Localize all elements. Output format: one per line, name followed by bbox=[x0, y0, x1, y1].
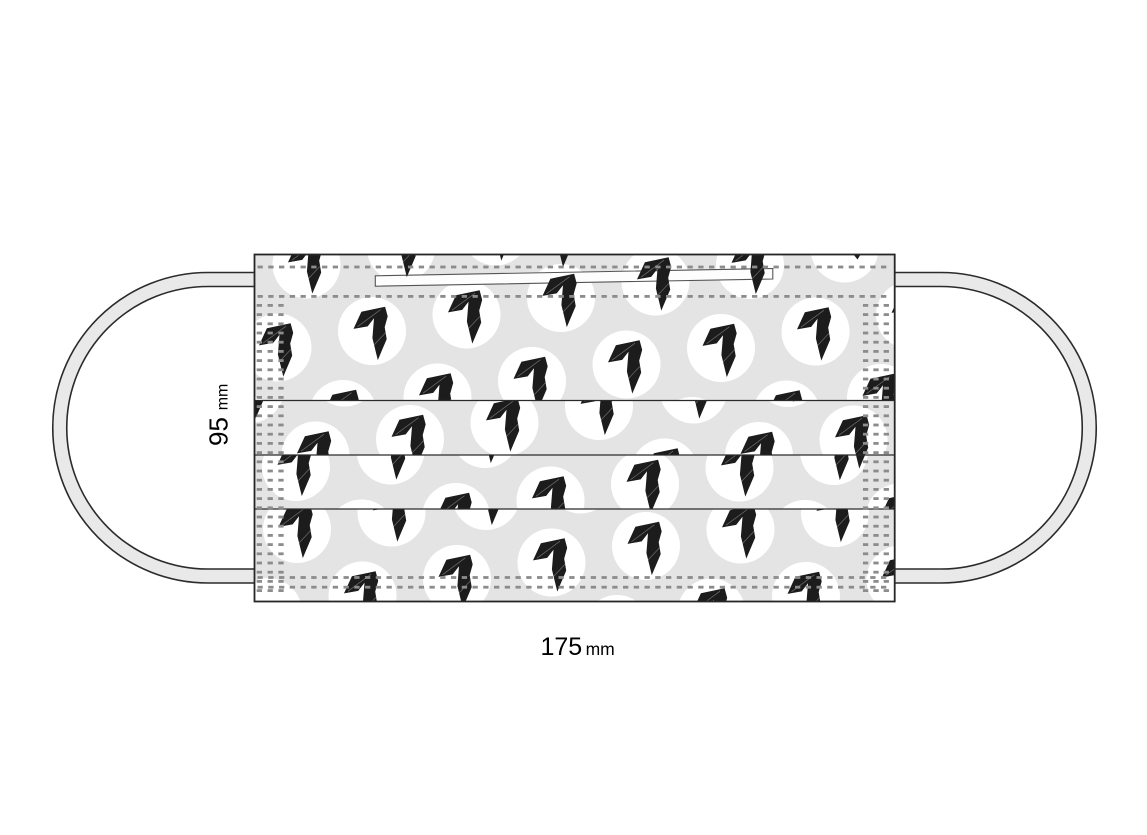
svg-text:95mm: 95mm bbox=[204, 384, 234, 446]
svg-text:175mm: 175mm bbox=[541, 633, 615, 661]
